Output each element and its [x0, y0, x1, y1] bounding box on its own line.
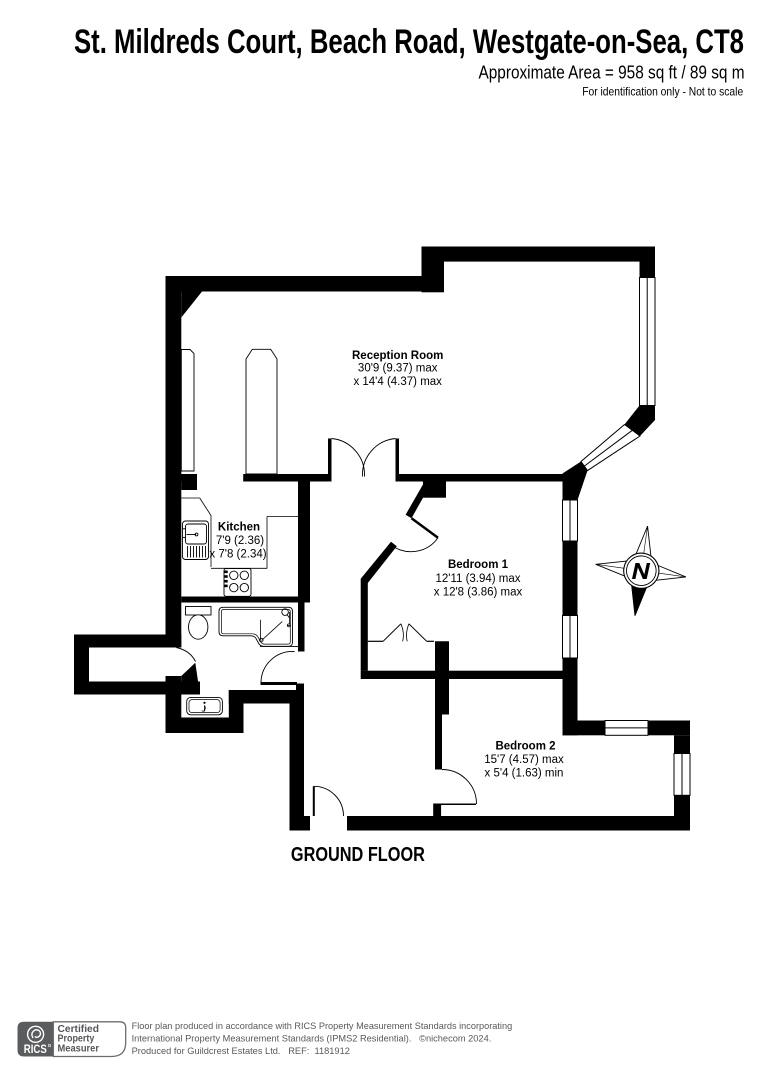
svg-text:x 12'8 (3.86) max: x 12'8 (3.86) max — [434, 587, 523, 599]
svg-text:7'9 (2.36): 7'9 (2.36) — [216, 535, 264, 547]
svg-text:Kitchen: Kitchen — [218, 522, 260, 534]
svg-text:12'11 (3.94) max: 12'11 (3.94) max — [435, 573, 520, 585]
svg-text:International Property Measure: International Property Measurement Stand… — [132, 1034, 492, 1045]
svg-text:Bedroom 2: Bedroom 2 — [495, 740, 555, 752]
svg-text:St. Mildreds Court, Beach Road: St. Mildreds Court, Beach Road, Westgate… — [74, 23, 744, 61]
svg-text:x 14'4 (4.37) max: x 14'4 (4.37) max — [353, 376, 442, 388]
svg-text:Measurer: Measurer — [58, 1043, 100, 1054]
svg-text:Bedroom 1: Bedroom 1 — [448, 559, 509, 571]
svg-text:30'9 (9.37) max: 30'9 (9.37) max — [358, 362, 438, 374]
svg-text:Reception Room: Reception Room — [352, 350, 443, 362]
svg-text:GROUND FLOOR: GROUND FLOOR — [291, 843, 425, 866]
svg-text:RICS: RICS — [24, 1044, 47, 1056]
svg-text:For identification only - Not: For identification only - Not to scale — [582, 84, 743, 98]
svg-text:Floor plan produced in accorda: Floor plan produced in accordance with R… — [132, 1021, 513, 1032]
svg-text:15'7 (4.57) max: 15'7 (4.57) max — [484, 754, 564, 766]
svg-text:Produced for Guildcrest Estate: Produced for Guildcrest Estates Ltd. REF… — [132, 1046, 350, 1057]
svg-text:x 5'4 (1.63) min: x 5'4 (1.63) min — [485, 767, 564, 779]
svg-text:Approximate Area = 958 sq ft /: Approximate Area = 958 sq ft / 89 sq m — [479, 62, 745, 82]
svg-text:x 7'8 (2.34): x 7'8 (2.34) — [209, 548, 266, 560]
